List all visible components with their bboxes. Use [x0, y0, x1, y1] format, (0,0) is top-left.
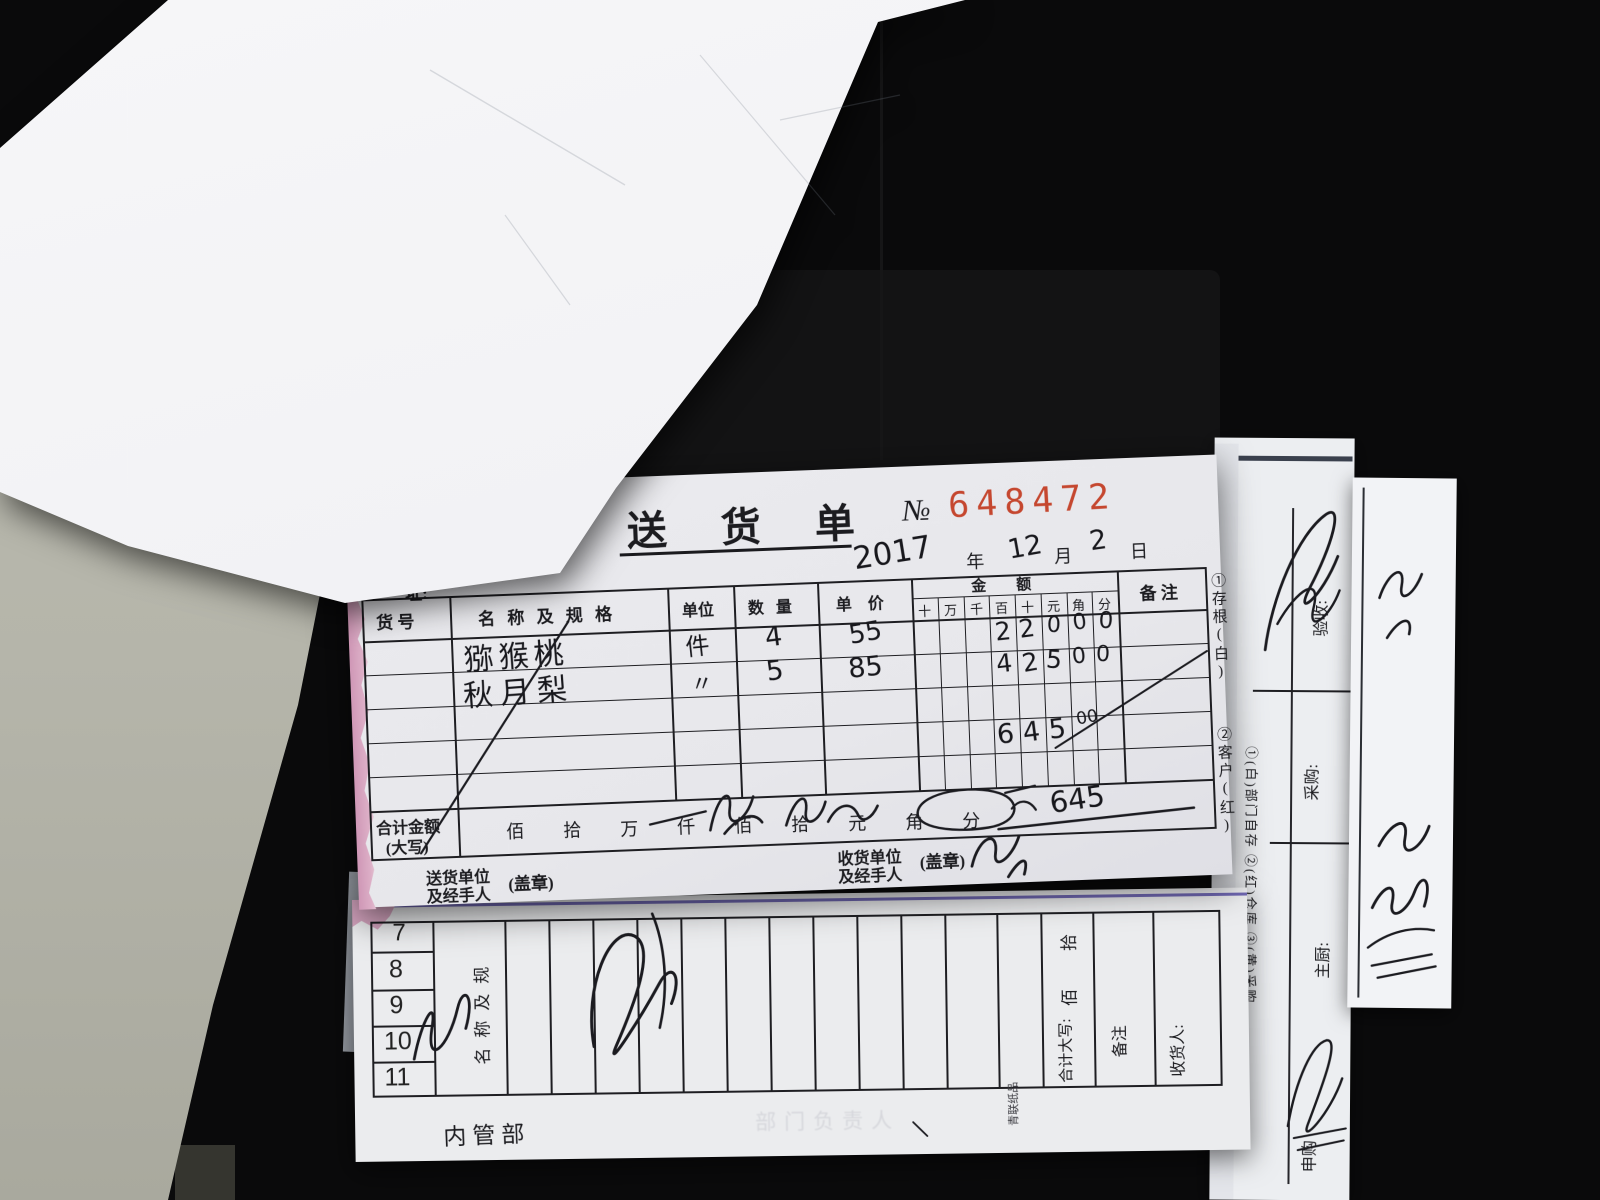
white-paper-sheet	[0, 0, 1600, 1200]
photo-of-delivery-receipts: 验收: 采购: 主厨: 申购 ①(白)部门自存 ②(红)仓库 ③(黄)采购	[0, 0, 1600, 1200]
white-paper-overlay	[0, 0, 1600, 1200]
